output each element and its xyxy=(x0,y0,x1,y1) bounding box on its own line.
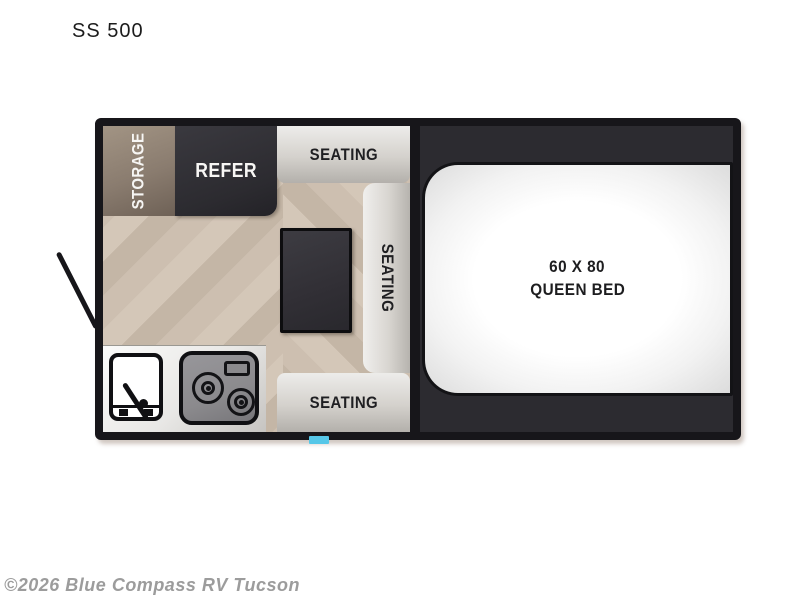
seating-side-label: SEATING xyxy=(377,244,397,312)
faucet-dot xyxy=(139,399,148,408)
kitchen-counter xyxy=(103,345,266,432)
seating-side: SEATING xyxy=(363,183,410,373)
burner-center xyxy=(239,400,244,405)
sink-knob xyxy=(119,409,128,416)
seating-bottom-label: SEATING xyxy=(309,393,377,413)
refrigerator-area: REFER xyxy=(175,126,277,216)
door-swing-line xyxy=(56,251,99,329)
seating-bottom: SEATING xyxy=(277,373,410,432)
bed-size-label: 60 X 80 xyxy=(550,256,606,279)
floorplan: STORAGE REFER SEATING SEATING SEATING xyxy=(95,118,741,440)
sink-icon xyxy=(109,353,163,421)
refer-label: REFER xyxy=(195,160,257,183)
burner-icon xyxy=(227,388,255,416)
seating-top-label: SEATING xyxy=(309,145,377,165)
stove-control-panel xyxy=(224,361,250,376)
watermark: ©2026 Blue Compass RV Tucson xyxy=(4,575,300,596)
dinette-table xyxy=(280,228,352,333)
burner-ring xyxy=(201,381,215,395)
stove-icon xyxy=(179,351,259,425)
entry-step xyxy=(309,436,329,444)
storage-label: STORAGE xyxy=(129,133,149,210)
storage-area: STORAGE xyxy=(103,126,175,216)
queen-bed: 60 X 80 QUEEN BED xyxy=(422,162,733,396)
bed-type-label: QUEEN BED xyxy=(530,279,625,302)
burner-icon xyxy=(192,372,224,404)
page-title: SS 500 xyxy=(72,20,144,43)
burner-ring xyxy=(234,395,248,409)
seating-top: SEATING xyxy=(277,126,410,183)
divider-wall xyxy=(410,126,420,432)
burner-center xyxy=(206,386,211,391)
